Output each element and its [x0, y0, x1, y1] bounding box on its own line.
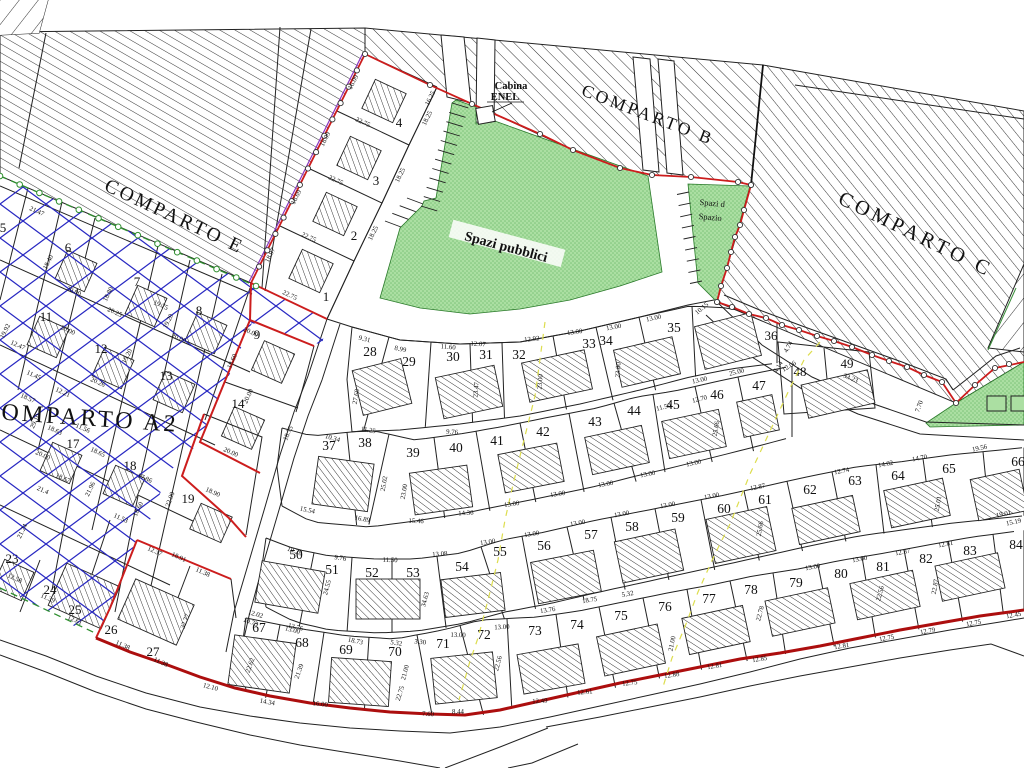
svg-text:72: 72: [477, 627, 491, 642]
svg-text:14.36: 14.36: [458, 509, 474, 517]
svg-text:46: 46: [710, 387, 724, 402]
svg-text:53: 53: [406, 565, 420, 580]
svg-text:36: 36: [765, 328, 779, 343]
svg-text:71: 71: [436, 636, 450, 651]
svg-text:47: 47: [752, 378, 766, 393]
svg-text:1: 1: [323, 289, 330, 304]
svg-text:49: 49: [841, 356, 854, 371]
svg-text:80: 80: [834, 566, 848, 581]
svg-text:38: 38: [358, 435, 372, 450]
svg-text:7.60: 7.60: [422, 711, 435, 718]
svg-text:2: 2: [351, 228, 358, 243]
svg-text:42: 42: [536, 424, 550, 439]
svg-text:61: 61: [758, 492, 772, 507]
svg-text:23.47: 23.47: [472, 381, 480, 397]
svg-text:73: 73: [528, 623, 542, 638]
svg-text:8.44: 8.44: [452, 709, 464, 716]
svg-text:76: 76: [658, 599, 672, 614]
svg-text:64: 64: [891, 468, 905, 483]
svg-text:4: 4: [396, 115, 403, 130]
svg-text:51: 51: [325, 562, 339, 577]
svg-text:43: 43: [588, 414, 602, 429]
svg-text:13.00: 13.00: [494, 624, 510, 632]
svg-text:66: 66: [1011, 454, 1024, 469]
svg-text:13.08: 13.08: [432, 550, 448, 558]
svg-text:35: 35: [667, 320, 681, 335]
svg-text:31: 31: [479, 347, 493, 362]
svg-text:44: 44: [627, 403, 641, 418]
svg-text:15.46: 15.46: [408, 518, 424, 526]
svg-text:9.76: 9.76: [446, 429, 459, 437]
svg-text:34: 34: [599, 333, 613, 348]
svg-text:69: 69: [339, 642, 353, 657]
svg-text:11.50: 11.50: [382, 557, 398, 565]
svg-text:Spazio: Spazio: [698, 211, 722, 223]
svg-text:3: 3: [373, 173, 380, 188]
svg-text:63: 63: [848, 473, 862, 488]
svg-text:75: 75: [614, 608, 628, 623]
svg-text:13.00: 13.00: [450, 632, 466, 640]
svg-text:82: 82: [919, 551, 933, 566]
svg-text:81: 81: [876, 559, 890, 574]
svg-text:68: 68: [295, 635, 309, 650]
svg-text:54: 54: [455, 559, 469, 574]
svg-text:78: 78: [744, 582, 758, 597]
svg-text:60: 60: [717, 501, 731, 516]
svg-text:26: 26: [105, 622, 119, 637]
svg-text:59: 59: [671, 510, 685, 525]
svg-text:ENEL: ENEL: [491, 92, 520, 103]
svg-text:23.00: 23.00: [614, 361, 622, 377]
svg-text:79: 79: [789, 575, 803, 590]
svg-text:57: 57: [584, 527, 598, 542]
svg-text:3.30: 3.30: [414, 638, 427, 646]
svg-text:74: 74: [570, 617, 584, 632]
svg-text:83: 83: [963, 543, 977, 558]
svg-text:52: 52: [365, 565, 379, 580]
svg-text:84: 84: [1009, 537, 1023, 552]
svg-text:29: 29: [402, 354, 416, 369]
svg-text:19: 19: [182, 491, 195, 506]
svg-text:33: 33: [582, 336, 596, 351]
svg-text:41: 41: [490, 433, 504, 448]
svg-text:23.00: 23.00: [536, 373, 544, 389]
svg-text:11.60: 11.60: [440, 343, 456, 351]
svg-text:12.49: 12.49: [532, 697, 548, 705]
svg-text:40: 40: [449, 440, 463, 455]
svg-text:65: 65: [942, 461, 956, 476]
svg-text:32: 32: [512, 347, 526, 362]
svg-text:39: 39: [406, 445, 420, 460]
svg-text:56: 56: [537, 538, 551, 553]
svg-text:58: 58: [625, 519, 639, 534]
svg-text:12.61: 12.61: [577, 688, 593, 696]
svg-text:Cabina: Cabina: [495, 81, 528, 92]
svg-text:28: 28: [363, 344, 377, 359]
svg-text:12.07: 12.07: [470, 341, 486, 349]
svg-text:77: 77: [702, 591, 716, 606]
svg-text:62: 62: [803, 482, 817, 497]
